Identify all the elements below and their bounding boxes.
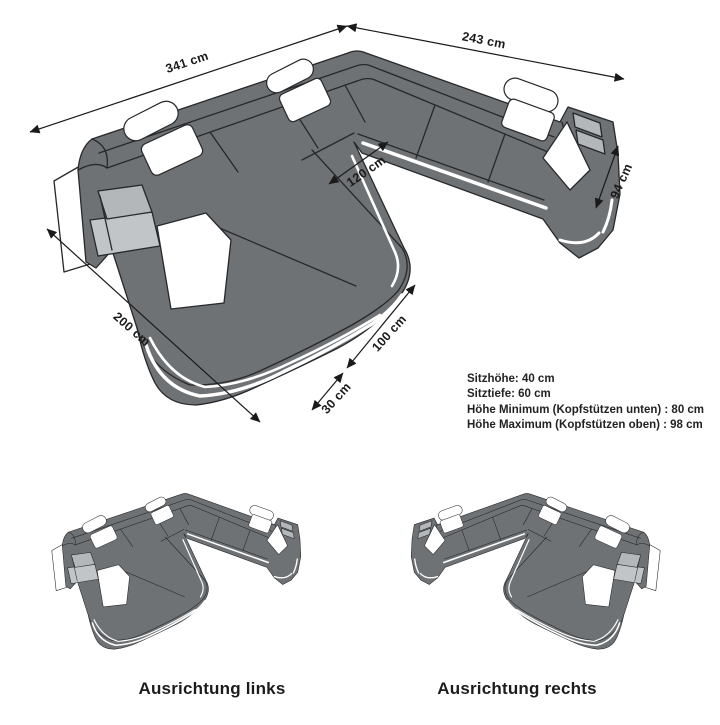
spec-line-height-max: Höhe Maximum (Kopfstützen oben) : 98 cm [467, 418, 717, 433]
dim-label-front-strip: 30 cm [319, 380, 354, 417]
dim-label-back-left: 341 cm [164, 49, 210, 76]
dimension-diagram-svg: 341 cm 243 cm 120 cm 94 cm 200 cm 100 cm… [0, 0, 720, 720]
product-dimension-diagram: 341 cm 243 cm 120 cm 94 cm 200 cm 100 cm… [0, 0, 720, 720]
variant-label-right: Ausrichtung rechts [367, 679, 667, 699]
variant-label-left: Ausrichtung links [62, 679, 362, 699]
sofa-variant-right-image [411, 493, 660, 649]
spec-line-height-min: Höhe Minimum (Kopfstützen unten) : 80 cm [467, 403, 717, 418]
sofa-illustration-main [54, 51, 620, 405]
spec-text-block: Sitzhöhe: 40 cm Sitztiefe: 60 cm Höhe Mi… [467, 372, 717, 434]
sofa-variant-left-image [52, 493, 301, 649]
dim-label-back-right: 243 cm [461, 29, 507, 51]
spec-line-seat-height: Sitzhöhe: 40 cm [467, 372, 717, 387]
spec-line-seat-depth: Sitztiefe: 60 cm [467, 387, 717, 402]
